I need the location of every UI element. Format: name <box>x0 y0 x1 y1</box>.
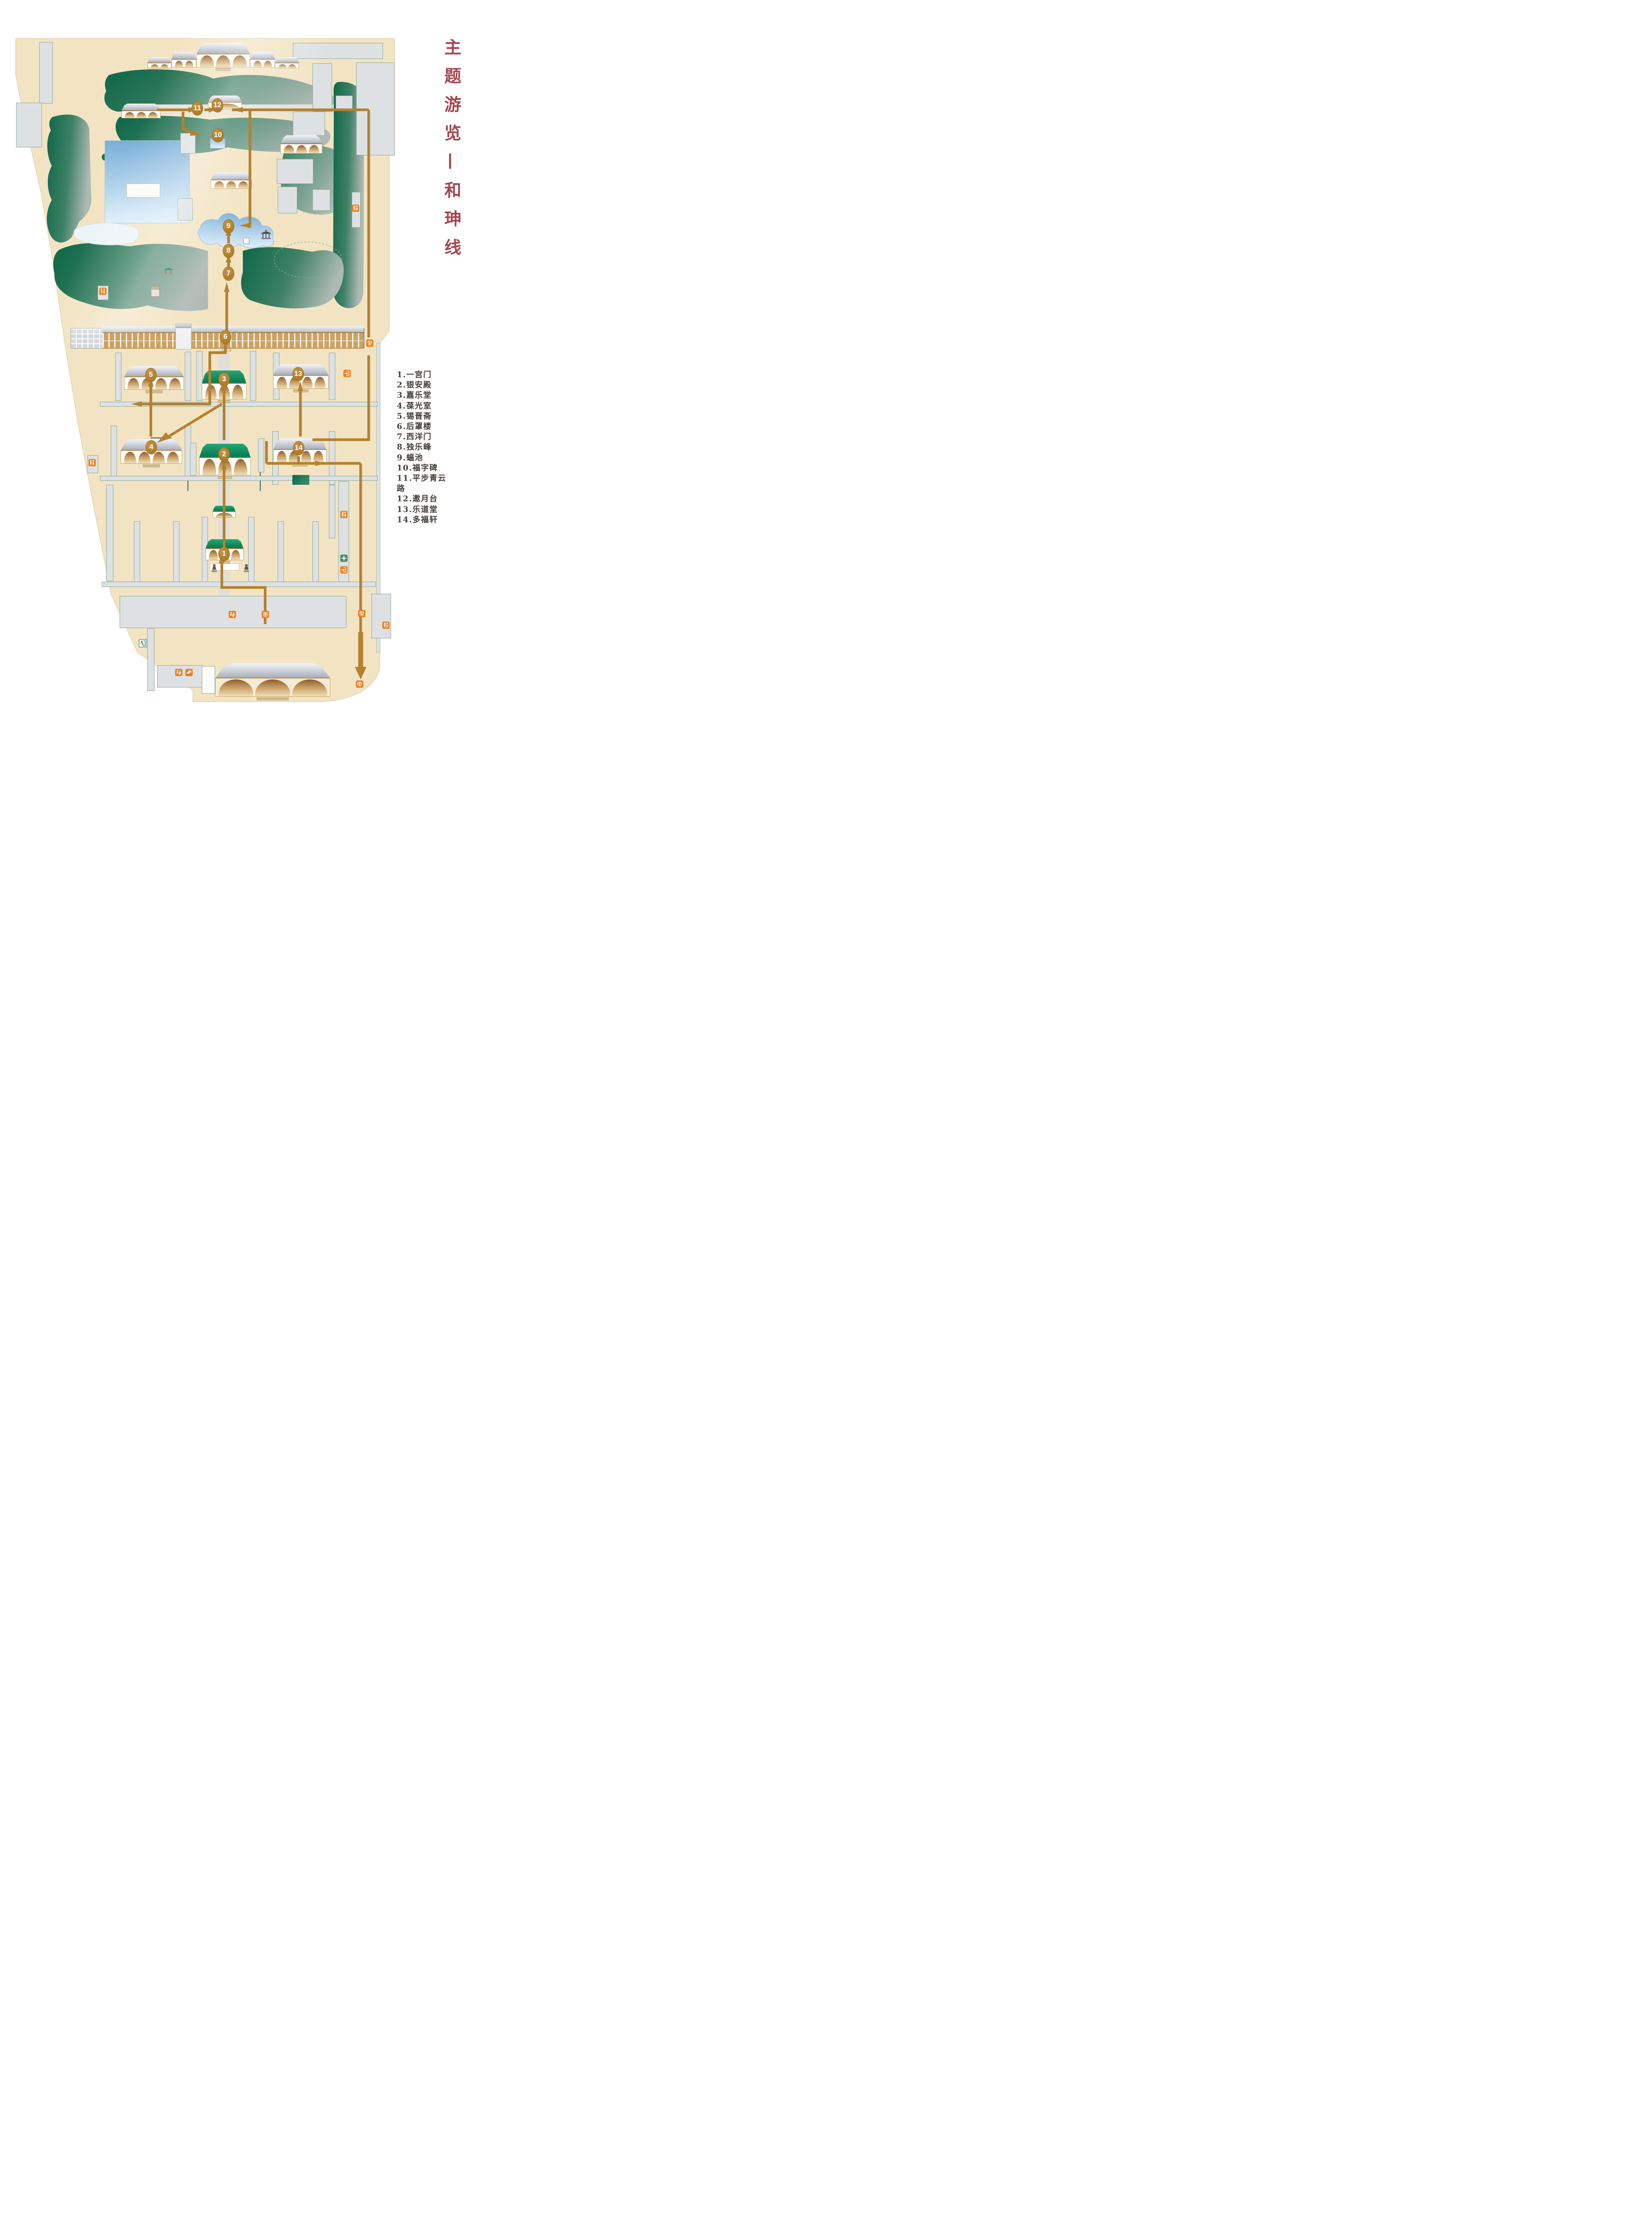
side-wing <box>329 353 335 400</box>
poi-marker-7[interactable]: 7 <box>223 267 234 280</box>
wall-building <box>16 103 42 147</box>
building-lake-pavilion <box>126 183 160 198</box>
exit-gate-icon[interactable] <box>358 610 366 617</box>
poi-marker-9[interactable]: 9 <box>223 220 234 233</box>
building-houzhaolou <box>103 326 364 348</box>
building-garden-east-hall <box>280 135 322 158</box>
legend-item: 12.邀月台 <box>397 494 454 504</box>
wall-band <box>102 582 376 587</box>
service-desk-icon[interactable] <box>175 669 183 676</box>
legend-item: 14.多福轩 <box>397 515 454 525</box>
legend-item: 1.一宫门 <box>397 370 454 380</box>
building-north-east-outer <box>275 57 299 72</box>
rockery-southwest <box>53 243 208 311</box>
side-wing <box>248 517 254 584</box>
service-desk-icon[interactable] <box>229 611 236 618</box>
entrance-up-icon[interactable] <box>262 611 269 618</box>
well-icon <box>243 237 250 244</box>
rockery-southeast <box>241 247 344 308</box>
side-wing <box>185 352 191 401</box>
poi-marker-12[interactable]: 12 <box>212 99 223 112</box>
legend: 1.一宫门 2.银安殿 3.嘉乐堂 4.葆光室 5.锡晋斋 6.后罩楼 7.西洋… <box>397 370 454 525</box>
legend-item: 4.葆光室 <box>397 401 454 412</box>
building-garden-pavilion-nw <box>121 104 161 122</box>
poi-marker-8[interactable]: 8 <box>223 244 234 258</box>
building-north-east-wing <box>250 52 275 71</box>
poi-marker-13[interactable]: 13 <box>293 367 304 381</box>
tree-icon <box>102 154 109 161</box>
poi-marker-1[interactable]: 1 <box>219 547 229 561</box>
wall-building <box>180 133 196 154</box>
exit-gate-icon[interactable] <box>356 680 363 688</box>
wall-building <box>356 62 395 155</box>
side-wing <box>111 426 117 479</box>
wall-building <box>178 198 193 221</box>
legend-item: 2.银安殿 <box>397 380 454 391</box>
side-wing <box>134 521 140 586</box>
side-wing <box>250 351 256 401</box>
pavilion-icon <box>260 229 272 240</box>
building-garden-center-hall <box>211 172 252 193</box>
legend-item: 9.蝠池 <box>397 453 454 463</box>
legend-item: 13.乐道堂 <box>397 505 454 515</box>
wall-building <box>293 43 383 59</box>
side-wing <box>106 485 113 581</box>
pingbuqingyun-path <box>134 104 369 114</box>
legend-item: 10.福字碑 <box>397 463 454 474</box>
stone-lion-icon <box>211 563 217 572</box>
entrance-gate-icon[interactable] <box>343 370 351 377</box>
poi-marker-11[interactable]: 11 <box>192 102 203 115</box>
entrance-gate-icon[interactable] <box>340 566 348 574</box>
legend-item: 6.后罩楼 <box>397 422 454 432</box>
legend-item: 3.嘉乐堂 <box>397 391 454 401</box>
side-wing <box>173 521 179 585</box>
map-title: 主题游览—和珅线 <box>439 38 464 267</box>
building-outer-main-gate <box>215 663 330 701</box>
building-north-west-wing <box>171 52 196 71</box>
legend-item: 7.西洋门 <box>397 432 454 442</box>
legend-item: 11.平步青云路 <box>397 474 454 494</box>
map-canvas: 1 2 3 4 5 6 7 8 9 10 11 12 13 14 主题游览—和珅… <box>0 0 493 703</box>
legend-item: 8.独乐峰 <box>397 442 454 453</box>
rockery-west <box>47 115 92 243</box>
exit-gate-icon[interactable] <box>366 339 374 347</box>
wall-building <box>277 159 313 184</box>
gate-pier <box>202 666 215 694</box>
poi-marker-2[interactable]: 2 <box>219 448 229 461</box>
wall-building <box>336 96 353 111</box>
side-wing <box>278 521 284 585</box>
light-streak <box>16 38 395 333</box>
stone-lion-icon <box>243 563 250 572</box>
toilet-icon[interactable] <box>352 204 359 212</box>
legend-item: 5.锡晋斋 <box>397 412 454 422</box>
toilet-icon[interactable] <box>88 459 96 466</box>
building-north-west-outer <box>147 57 171 72</box>
building-north-main-hall <box>196 43 250 71</box>
garden-patch <box>292 475 309 485</box>
toilet-icon[interactable] <box>99 287 107 295</box>
poi-marker-4[interactable]: 4 <box>146 441 157 454</box>
poi-marker-14[interactable]: 14 <box>293 441 304 455</box>
ticket-icon[interactable] <box>185 669 193 676</box>
side-wing <box>115 353 121 401</box>
side-wing <box>312 521 319 585</box>
emergency-exit-icon[interactable] <box>139 639 147 647</box>
poi-marker-3[interactable]: 3 <box>219 373 229 386</box>
wall-building <box>312 189 330 211</box>
square-lake <box>105 141 190 223</box>
corridor-west-block <box>71 328 104 349</box>
side-wing <box>190 443 196 476</box>
green-pavilion-icon <box>163 266 173 275</box>
wall-building <box>147 629 154 691</box>
wall-building <box>312 63 332 112</box>
pale-pond <box>74 223 139 245</box>
wall-building <box>371 594 391 638</box>
first-aid-icon[interactable] <box>340 554 348 562</box>
side-wing <box>258 438 264 472</box>
side-wing <box>329 485 335 538</box>
wall-building <box>39 42 53 104</box>
poi-marker-6[interactable]: 6 <box>220 330 231 344</box>
wall-building <box>293 112 325 136</box>
tower-icon <box>151 286 160 297</box>
toilet-icon[interactable] <box>340 511 348 518</box>
toilet-icon[interactable] <box>382 621 390 629</box>
dotted-trail <box>274 242 342 278</box>
wall-building <box>278 187 297 213</box>
building-middle-gate <box>212 506 236 522</box>
poi-marker-5[interactable]: 5 <box>146 368 156 382</box>
corridor-tower <box>175 324 191 350</box>
poi-marker-10[interactable]: 10 <box>212 129 223 142</box>
